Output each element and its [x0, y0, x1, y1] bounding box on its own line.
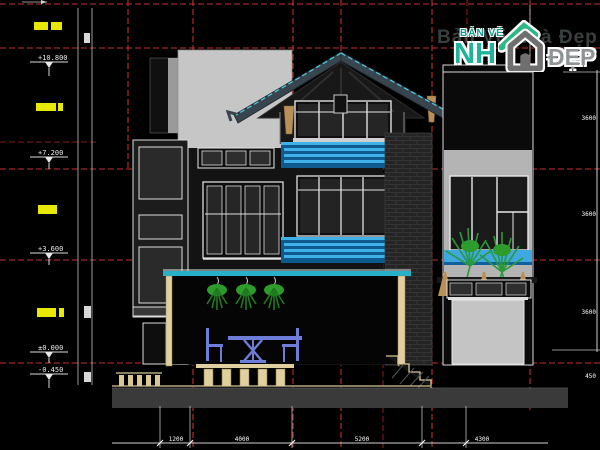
right-dim-4: 450 — [585, 373, 596, 380]
logo-house-icon — [498, 20, 550, 72]
right-wing-transom — [447, 280, 531, 298]
logo-badge: BẢN VẼ NH ĐẸP — [452, 12, 592, 78]
clerestory-window-band — [198, 148, 274, 168]
right-dim-3: 3600 — [582, 309, 597, 316]
porch-teal-beam — [163, 271, 411, 276]
right-dim-2: 3600 — [582, 211, 597, 218]
right-dim-1: 3600 — [582, 115, 597, 122]
logo-dep-text: ĐẸP — [548, 44, 595, 71]
level-text-3: +3.600 — [38, 245, 63, 253]
logo-nh-text: NH — [454, 38, 496, 71]
garage-door — [452, 300, 524, 364]
porch-balustrade — [196, 364, 294, 386]
level-text-5: -0.450 — [38, 366, 63, 374]
second-floor-left-window — [203, 182, 283, 259]
level-text-4: ±0.000 — [38, 344, 63, 352]
porch — [163, 270, 411, 366]
porch-post-left — [166, 276, 172, 366]
bottom-dim-4: 4300 — [475, 436, 490, 443]
ground-plinth — [112, 386, 568, 408]
bottom-dim-2: 4000 — [235, 436, 250, 443]
second-floor-center-window — [297, 176, 388, 236]
cad-viewport: +10.800 +7.200 +3.600 ±0.000 -0.450 — [0, 0, 600, 450]
porch-post-right — [398, 276, 405, 366]
level-text-2: +7.200 — [38, 149, 63, 157]
level-text-1: +10.800 — [38, 54, 68, 62]
right-wing — [437, 65, 537, 365]
bottom-dim-1: 1200 — [169, 436, 184, 443]
bottom-dim-3: 5200 — [355, 436, 370, 443]
roof-vent — [334, 95, 347, 113]
